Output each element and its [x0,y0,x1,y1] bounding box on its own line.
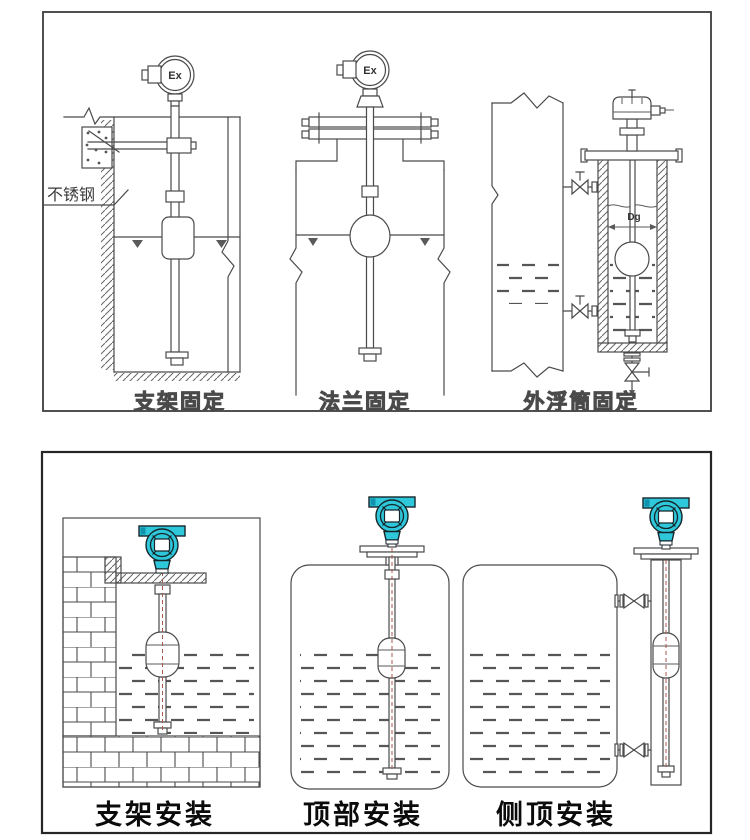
top-install-drawing [291,497,449,789]
side-top-install-drawing [463,498,698,787]
caption-side-top-install: 侧顶安装 [496,800,616,830]
ex-marking-2: Ex [363,65,377,77]
bottom-panel: 支架安装 顶部安装 侧顶安装 [42,452,711,833]
flange-fixing-drawing: Ex [290,51,450,395]
caption-flange-fixing: 法兰固定 [319,390,411,414]
upper-valve [615,594,648,608]
transmitter-head-3 [643,498,689,545]
transmitter-head-1 [139,526,185,573]
top-panel: Ex 不锈钢 [43,12,711,414]
bracket-install-drawing [63,518,260,787]
caption-chamber-fixing: 外浮筒固定 [524,390,639,414]
ex-marking-1: Ex [168,70,182,82]
float-level-transmitter-installation-diagram: Ex 不锈钢 [0,0,750,840]
lower-valve [615,743,648,757]
caption-bracket-fixing: 支架固定 [134,390,226,414]
transmitter-head-2 [369,497,415,544]
bracket-fixing-drawing: Ex 不锈钢 [44,56,240,381]
stainless-steel-label: 不锈钢 [47,186,95,204]
external-chamber-fixing-drawing: Dg [492,90,682,396]
caption-bracket-install: 支架安装 [95,800,215,830]
dg-dimension-label: Dg [627,212,640,223]
diagram-canvas: Ex 不锈钢 [0,0,750,840]
caption-top-install: 顶部安装 [303,799,423,830]
